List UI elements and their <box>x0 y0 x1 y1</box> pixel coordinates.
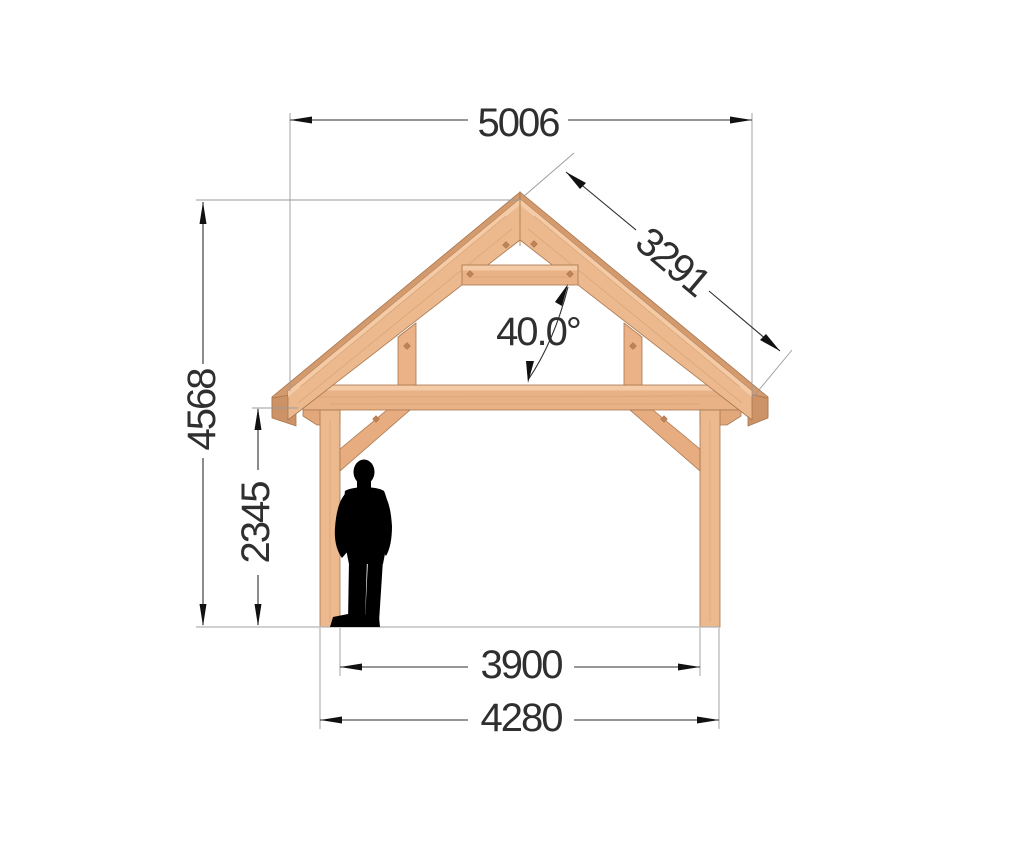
dim-roof-angle: 40.0° <box>496 310 580 354</box>
dim-outer-span: 4280 <box>481 696 563 740</box>
technical-drawing-canvas: 5006 3291 40.0° 4568 2345 3900 4280 <box>0 0 1024 853</box>
post-right <box>700 410 720 627</box>
collar-tie-top-face <box>463 266 578 271</box>
timber-frame-elevation-svg: 5006 3291 40.0° 4568 2345 3900 4280 <box>0 0 1024 853</box>
dim-overall-height: 4568 <box>180 369 224 451</box>
tie-beam-top-face <box>304 386 744 391</box>
dim-eave-height: 2345 <box>234 482 278 564</box>
tie-beam <box>303 385 744 410</box>
figure-leg-right <box>365 560 383 622</box>
dim-inner-span: 3900 <box>481 643 563 687</box>
dimension-labels: 5006 3291 40.0° 4568 2345 3900 4280 <box>180 101 718 740</box>
figure-leg-left <box>348 560 367 622</box>
dim-roof-width: 5006 <box>478 101 560 145</box>
collar-tie <box>462 265 578 285</box>
